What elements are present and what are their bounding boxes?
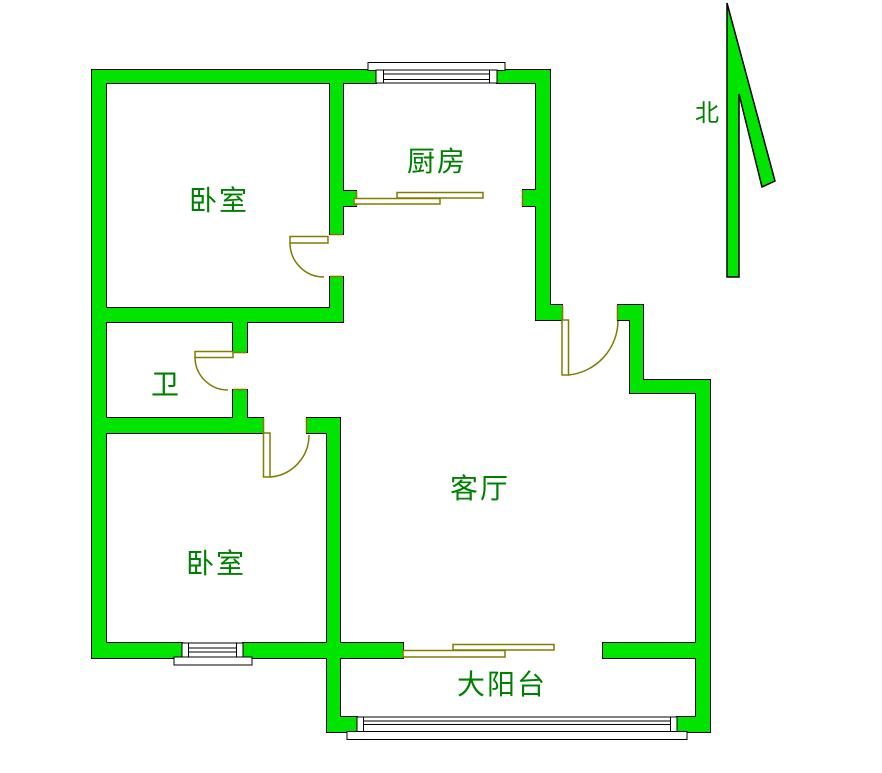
walls [92,70,710,732]
floor-plan: 卧室 厨房 卫 客厅 卧室 大阳台 北 [0,0,882,773]
north-arrow-icon [727,3,775,277]
balcony-window [347,717,687,740]
room-label-living-room: 客厅 [450,476,510,504]
north-label: 北 [695,102,719,126]
room-label-kitchen: 厨房 [407,149,467,177]
room-label-balcony: 大阳台 [457,672,547,700]
kitchen-sliding-door [354,193,483,205]
room-label-bathroom: 卫 [151,372,181,400]
floor-plan-drawing [0,0,882,773]
bathroom-door [195,352,233,391]
bedroom-south-door [264,433,310,477]
bedroom-window [174,643,252,665]
room-label-bedroom-south: 卧室 [186,551,246,579]
balcony-sliding-door [403,645,554,658]
bedroom-north-door [290,237,328,278]
room-label-bedroom-north: 卧室 [189,188,249,216]
kitchen-window [368,63,505,84]
entry-door [562,320,618,375]
